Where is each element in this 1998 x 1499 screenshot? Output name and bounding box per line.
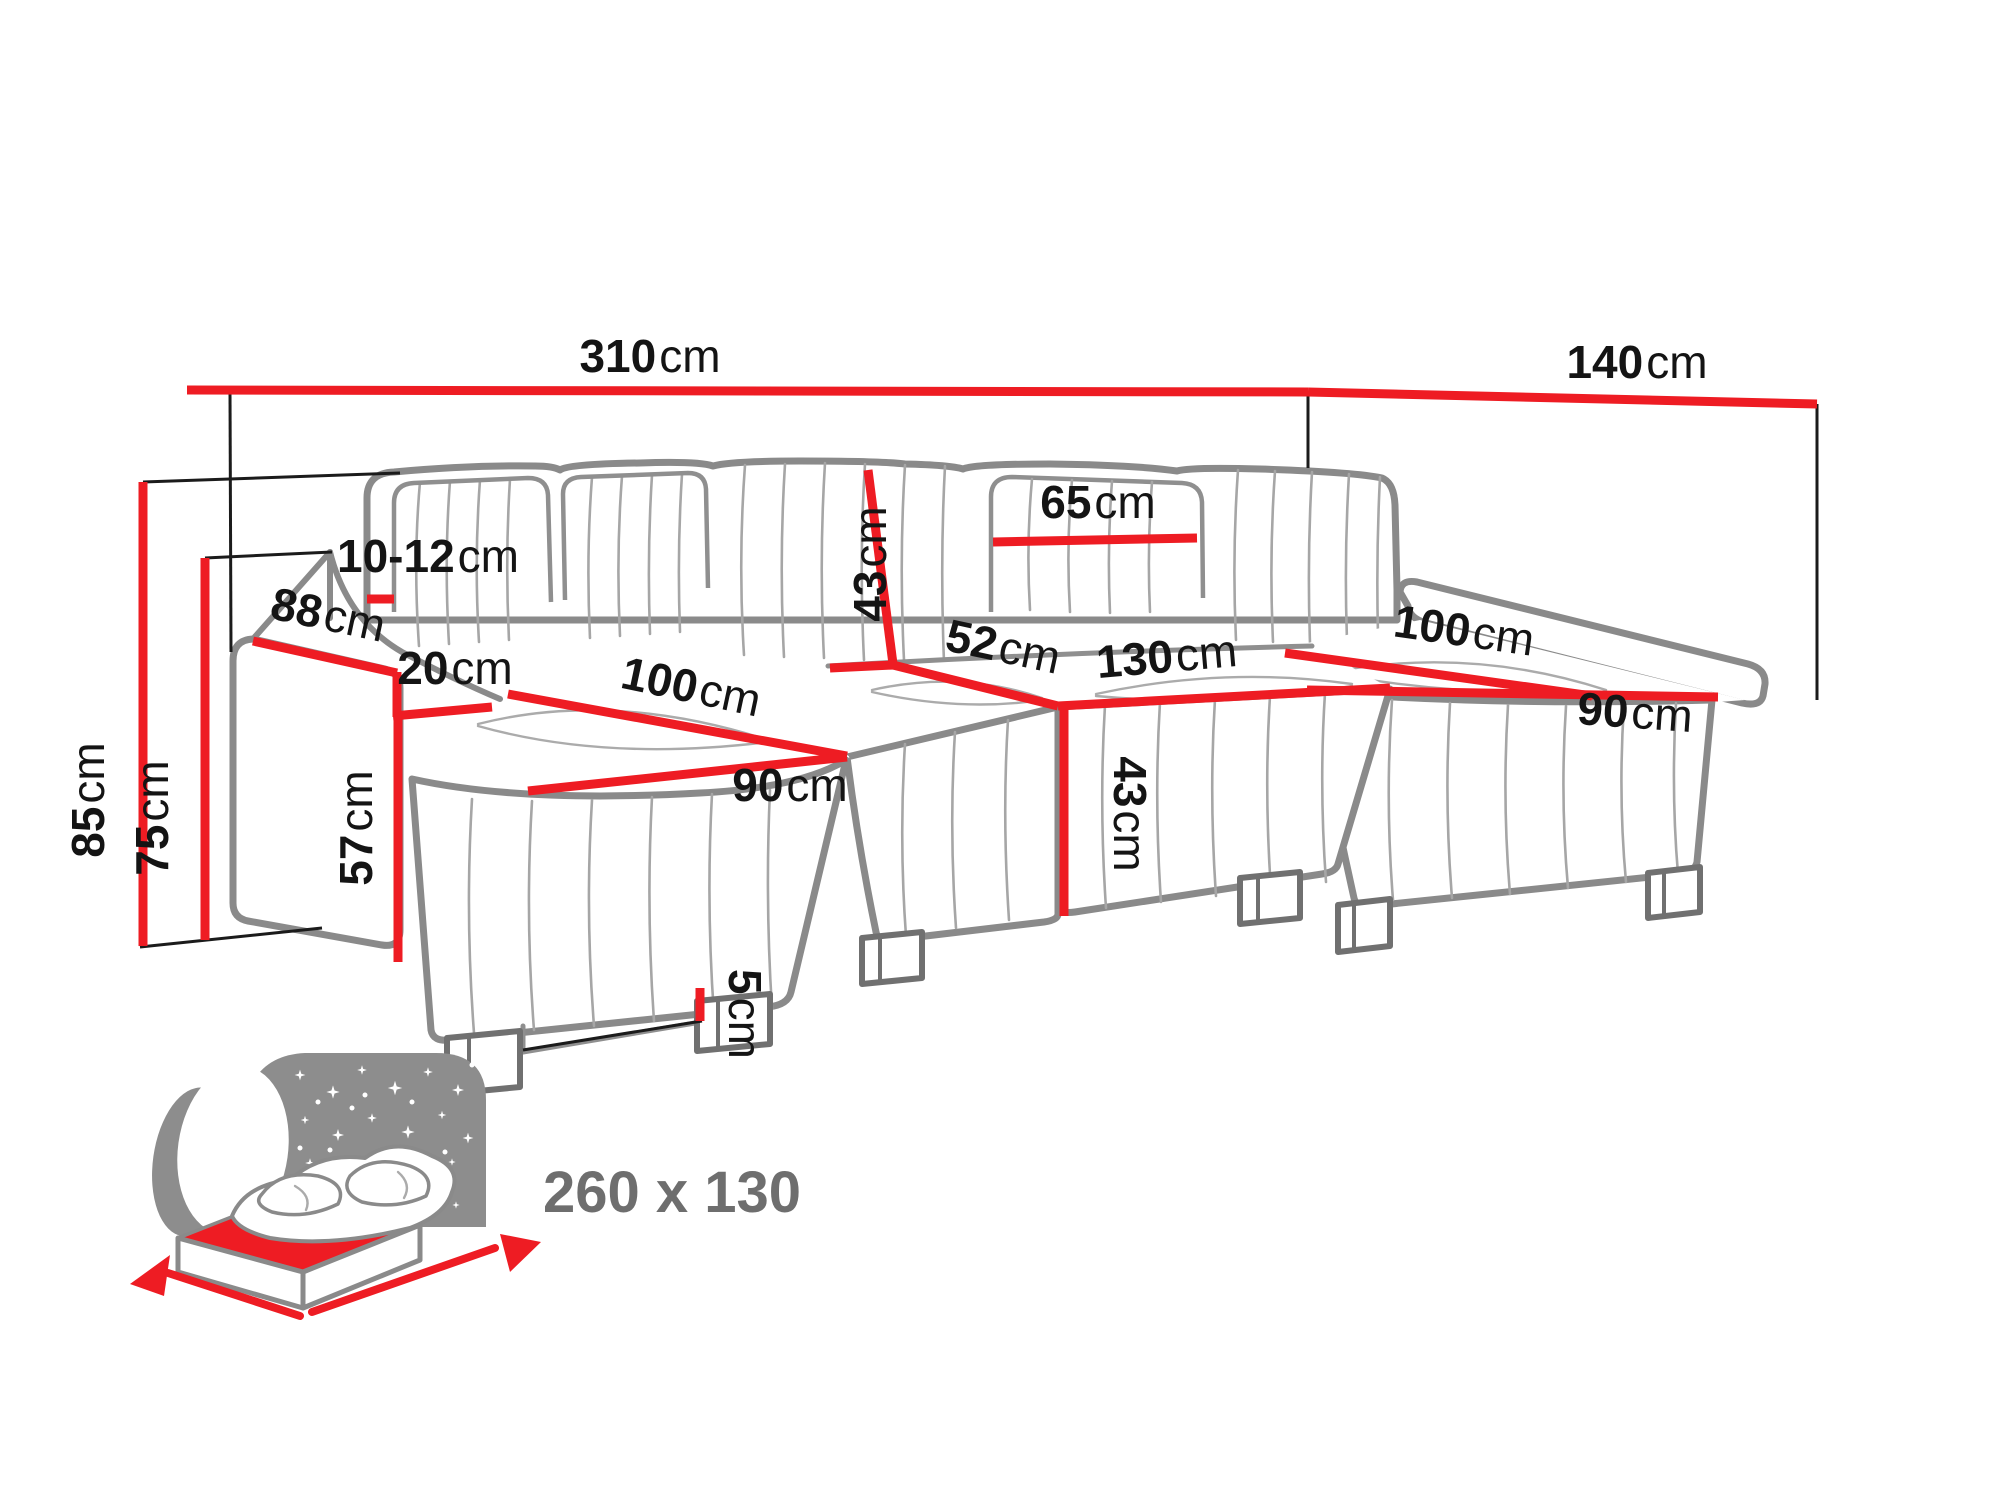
label-armrest-width: 20cm bbox=[397, 642, 513, 694]
dimension-line-back-cushion-width bbox=[993, 538, 1197, 542]
label-seat-height: 43cm bbox=[1104, 756, 1156, 872]
dimension-line-total-width bbox=[187, 390, 1308, 392]
dimension-line-total-depth bbox=[1308, 392, 1817, 404]
sleeping-function-icon: 260 x 130 bbox=[0, 1053, 801, 1316]
label-total-depth: 140cm bbox=[1566, 336, 1707, 388]
label-armrest-height: 75cm bbox=[126, 760, 178, 876]
label-backrest-gap: 10-12cm bbox=[337, 530, 519, 582]
label-total-width: 310cm bbox=[579, 330, 720, 382]
label-leg-height: 5cm bbox=[719, 969, 771, 1059]
diagram-canvas: 310cm 140cm 85cm 75cm 88cm 10-12cm 20cm … bbox=[0, 0, 1998, 1499]
sleeping-area-label: 260 x 130 bbox=[543, 1160, 801, 1225]
bed-pillow-right bbox=[347, 1162, 429, 1205]
label-right-chaise-width: 90cm bbox=[1576, 682, 1695, 742]
label-back-cushion-width: 65cm bbox=[1040, 476, 1156, 528]
label-left-chaise-width: 90cm bbox=[732, 759, 848, 811]
label-backrest-height: 43cm bbox=[844, 506, 896, 622]
label-overall-height: 85cm bbox=[62, 742, 114, 858]
label-side-height: 57cm bbox=[330, 770, 382, 886]
sofa-dimension-diagram: 310cm 140cm 85cm 75cm 88cm 10-12cm 20cm … bbox=[0, 0, 1998, 1499]
